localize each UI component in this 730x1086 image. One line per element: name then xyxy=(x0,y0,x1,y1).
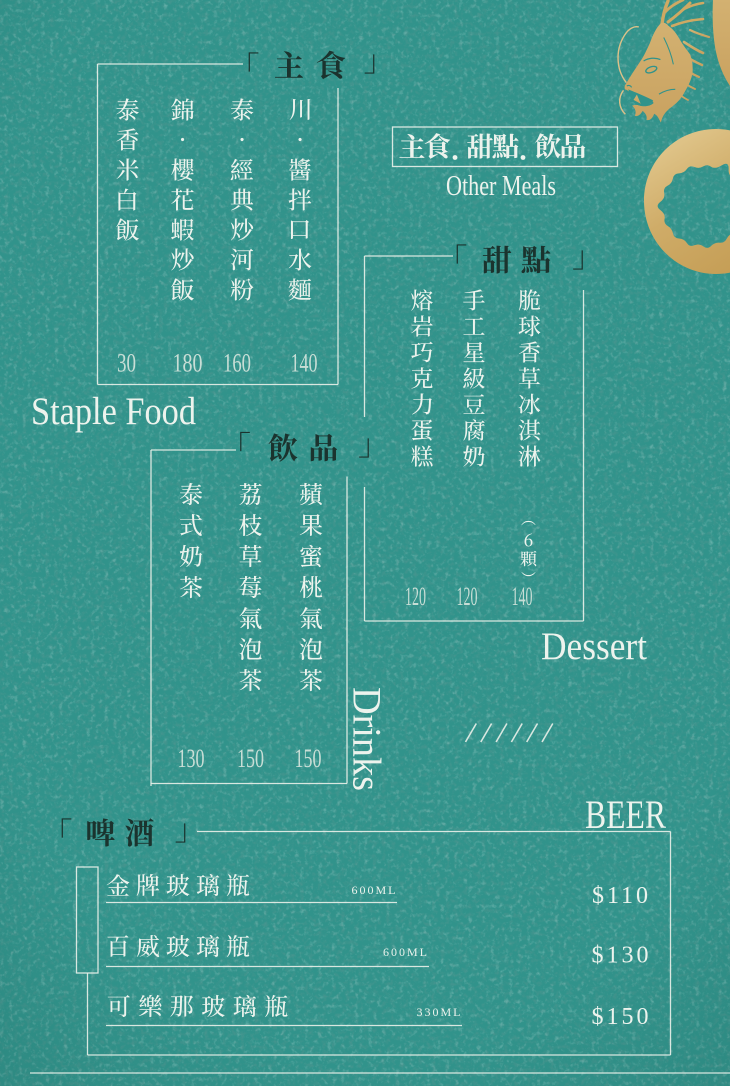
svg-text:600ML: 600ML xyxy=(352,883,398,897)
svg-text:BEER: BEER xyxy=(585,792,666,837)
svg-text:Other Meals: Other Meals xyxy=(446,171,556,202)
svg-text:30: 30 xyxy=(117,349,136,378)
svg-text:120: 120 xyxy=(457,582,478,611)
svg-text:$130: $130 xyxy=(592,943,652,969)
svg-text:130: 130 xyxy=(178,744,205,773)
svg-text:Dessert: Dessert xyxy=(541,625,647,668)
svg-text:$110: $110 xyxy=(592,883,651,909)
svg-text:120: 120 xyxy=(405,582,426,611)
svg-text:$150: $150 xyxy=(592,1004,652,1030)
svg-text:Staple Food: Staple Food xyxy=(31,390,196,433)
svg-text:180: 180 xyxy=(173,349,203,378)
svg-text:150: 150 xyxy=(295,744,322,773)
svg-text:160: 160 xyxy=(223,349,251,378)
svg-text:330ML: 330ML xyxy=(417,1005,463,1019)
svg-text:Drinks: Drinks xyxy=(345,687,390,791)
svg-text:150: 150 xyxy=(237,744,264,773)
svg-text:600ML: 600ML xyxy=(383,945,429,959)
svg-text:140: 140 xyxy=(291,349,318,378)
svg-text:140: 140 xyxy=(512,582,533,611)
